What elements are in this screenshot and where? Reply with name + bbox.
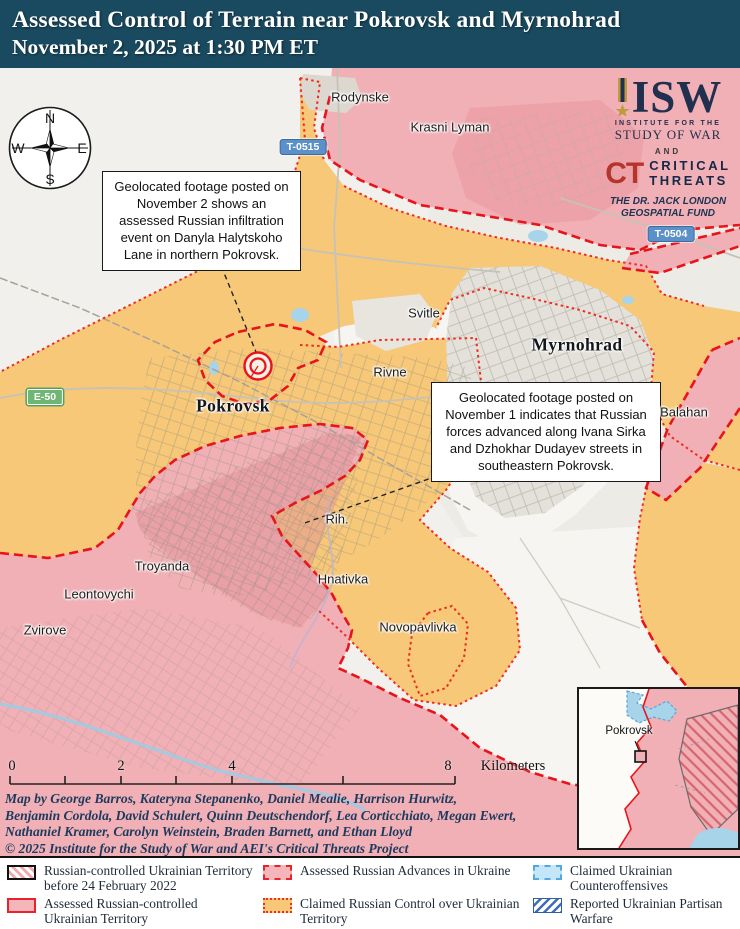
compass-rose: N E S W — [6, 104, 94, 192]
map-date: November 2, 2025 at 1:30 PM ET — [12, 35, 740, 61]
legend-label: Assessed Russian Advances in Ukraine — [300, 863, 511, 893]
town-label-rih: Rih. — [325, 512, 348, 527]
town-label-leontovychi: Leontovychi — [64, 587, 133, 602]
legend-swatch-prewar-hatch — [7, 865, 36, 880]
legend-item-assessed-control: Assessed Russian-controlled Ukrainian Te… — [7, 896, 263, 926]
town-label-rodynske: Rodynske — [331, 90, 389, 105]
logo-and: AND — [598, 147, 738, 156]
fund-line2: GEOSPATIAL FUND — [598, 208, 738, 221]
isw-wordmark: ISW — [632, 76, 723, 119]
inset-locator-map: Pokrovsk — [577, 687, 740, 850]
ct-critical: CRITICAL — [649, 159, 730, 174]
town-label-svitle: Svitle — [408, 306, 440, 321]
town-label-hnativka: Hnativka — [318, 572, 369, 587]
legend-label: Reported Ukrainian Partisan Warfare — [570, 896, 730, 926]
medal-icon — [614, 76, 630, 116]
road-badge-t0515: T-0515 — [280, 139, 327, 155]
scale-tick-2: 2 — [117, 758, 124, 775]
map-legend: Russian-controlled Ukrainian Territory b… — [0, 856, 740, 929]
fund-line1: THE DR. JACK LONDON — [598, 196, 738, 209]
infiltration-event-marker — [245, 353, 272, 380]
scale-unit: Kilometers — [481, 758, 545, 775]
ct-threats: THREATS — [649, 174, 730, 189]
legend-swatch-counteroffensives — [533, 865, 562, 880]
legend-item-claimed-control: Claimed Russian Control over Ukrainian T… — [263, 896, 533, 926]
inset-pokrovsk-box — [635, 751, 646, 762]
annotation-callout-southeast-pokrovsk: Geolocated footage posted on November 1 … — [431, 382, 661, 482]
scale-tick-0: 0 — [8, 758, 15, 775]
legend-label: Claimed Russian Control over Ukrainian T… — [300, 896, 523, 926]
credits-line2: Benjamin Cordola, David Schulert, Quinn … — [5, 808, 573, 825]
legend-label: Assessed Russian-controlled Ukrainian Te… — [44, 896, 253, 926]
compass-e: E — [77, 140, 86, 156]
isw-map-page: Assessed Control of Terrain near Pokrovs… — [0, 0, 740, 929]
title-bar: Assessed Control of Terrain near Pokrovs… — [0, 0, 740, 68]
town-label-krasni-lyman: Krasni Lyman — [411, 120, 490, 135]
legend-label: Russian-controlled Ukrainian Territory b… — [44, 863, 253, 893]
inset-pokrovsk-label: Pokrovsk — [605, 725, 652, 737]
legend-label: Claimed Ukrainian Counteroffensives — [570, 863, 730, 893]
ct-monogram: CT — [605, 160, 643, 187]
road-badge-e50: E-50 — [27, 389, 63, 405]
legend-swatch-partisan-hatch — [533, 898, 562, 913]
compass-n: N — [45, 110, 55, 126]
map-canvas: N E S W ISW INSTITUTE FOR THE STUDY OF W… — [0, 68, 740, 856]
city-label-pokrovsk: Pokrovsk — [196, 396, 270, 417]
legend-swatch-advances — [263, 865, 292, 880]
legend-item-advances: Assessed Russian Advances in Ukraine — [263, 863, 533, 893]
town-label-zvirove: Zvirove — [24, 623, 67, 638]
isw-institute-line1: INSTITUTE FOR THE — [598, 120, 738, 127]
town-label-rivne: Rivne — [373, 365, 406, 380]
compass-s: S — [45, 171, 54, 187]
scale-tick-8: 8 — [444, 758, 451, 775]
town-label-novopavlivka: Novopavlivka — [379, 620, 456, 635]
isw-ct-logo: ISW INSTITUTE FOR THE STUDY OF WAR AND C… — [598, 76, 738, 221]
inset-graphic — [579, 689, 738, 848]
annotation-callout-north-pokrovsk: Geolocated footage posted on November 2 … — [102, 171, 301, 271]
legend-item-partisan: Reported Ukrainian Partisan Warfare — [533, 896, 740, 926]
legend-swatch-assessed-control — [7, 898, 36, 913]
credits-line4: © 2025 Institute for the Study of War an… — [5, 841, 573, 856]
town-label-troyanda: Troyanda — [135, 559, 189, 574]
town-label-balahan: Balahan — [660, 405, 708, 420]
credits-line3: Nathaniel Kramer, Carolyn Weinstein, Bra… — [5, 824, 573, 841]
city-label-myrnohrad: Myrnohrad — [531, 335, 622, 356]
legend-item-counteroffensives: Claimed Ukrainian Counteroffensives — [533, 863, 740, 893]
map-title: Assessed Control of Terrain near Pokrovs… — [12, 6, 740, 35]
road-badge-t0504: T-0504 — [648, 226, 695, 242]
legend-item-prewar: Russian-controlled Ukrainian Territory b… — [7, 863, 263, 893]
credits-block: Map by George Barros, Kateryna Stepanenk… — [5, 791, 573, 856]
isw-institute-line2: STUDY OF WAR — [598, 127, 738, 143]
legend-swatch-claimed-control — [263, 898, 292, 913]
scale-tick-4: 4 — [228, 758, 235, 775]
credits-line1: Map by George Barros, Kateryna Stepanenk… — [5, 791, 573, 808]
compass-w: W — [11, 140, 25, 156]
